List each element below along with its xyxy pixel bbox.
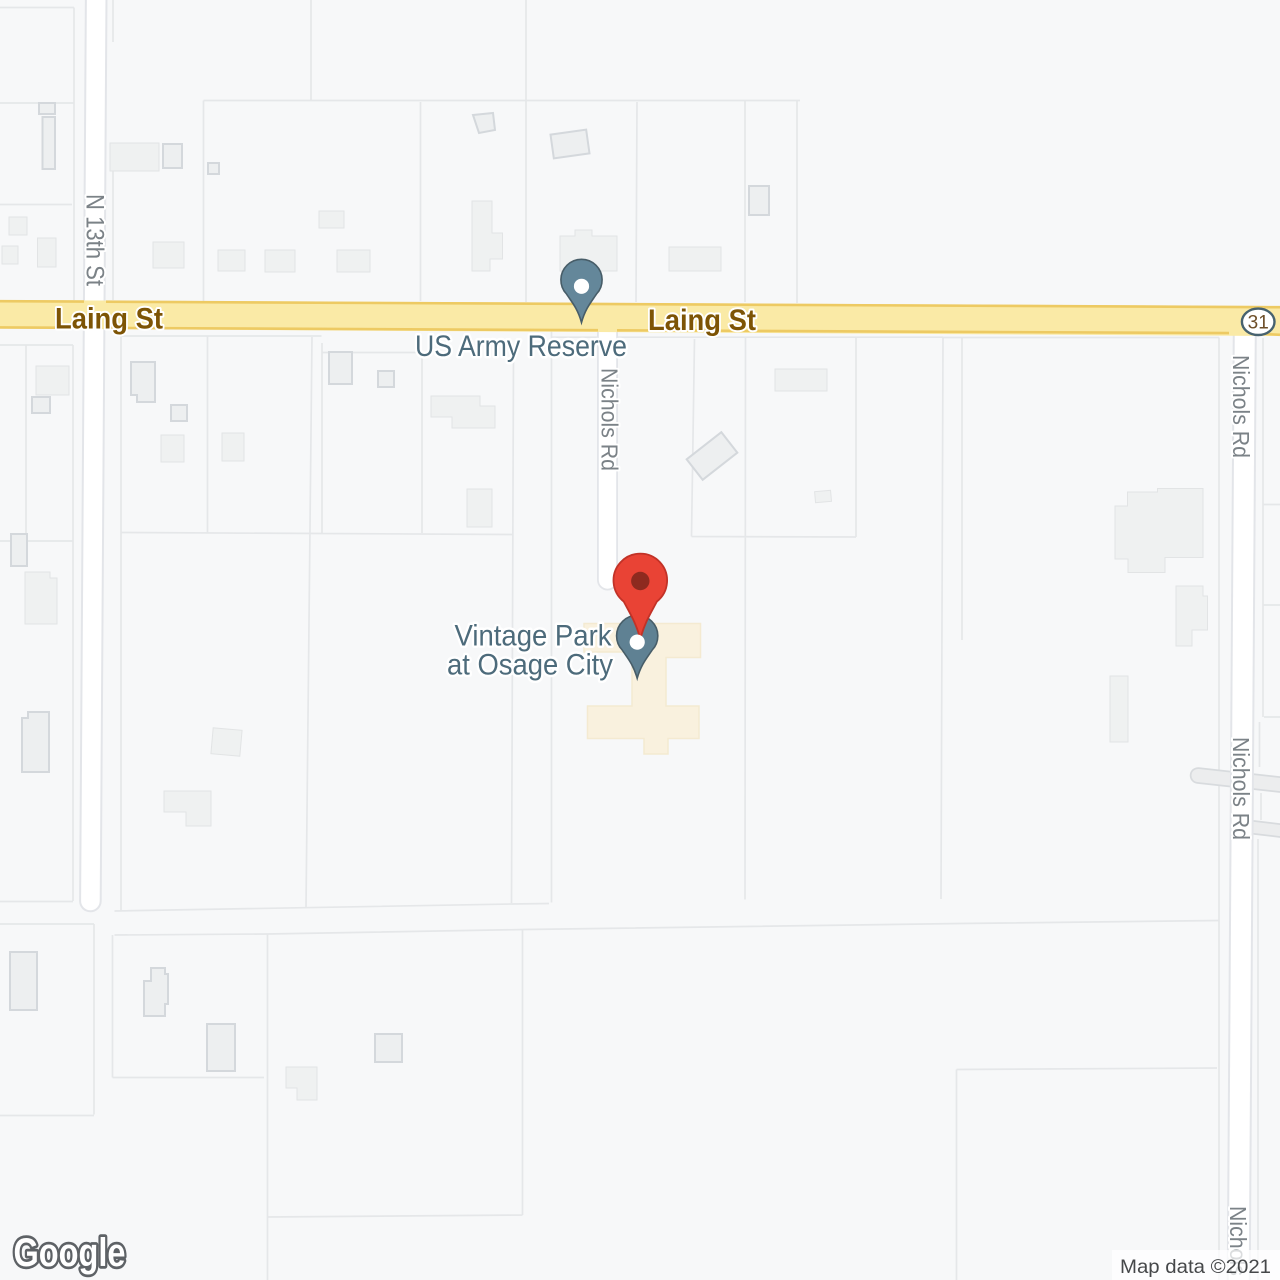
svg-text:Nichols Rd: Nichols Rd xyxy=(1228,737,1254,840)
svg-text:N 13th St: N 13th St xyxy=(81,194,109,286)
svg-text:31: 31 xyxy=(1248,313,1269,334)
svg-text:Laing St: Laing St xyxy=(55,303,163,336)
svg-text:Google: Google xyxy=(14,1231,126,1275)
svg-text:US Army Reserve: US Army Reserve xyxy=(415,330,627,363)
svg-text:Map data ©2021: Map data ©2021 xyxy=(1120,1256,1271,1278)
svg-text:Laing St: Laing St xyxy=(648,304,756,337)
svg-text:Nichols Rd: Nichols Rd xyxy=(597,368,623,471)
svg-text:Nichols Rd: Nichols Rd xyxy=(1228,355,1254,458)
svg-text:at Osage City: at Osage City xyxy=(447,649,613,682)
